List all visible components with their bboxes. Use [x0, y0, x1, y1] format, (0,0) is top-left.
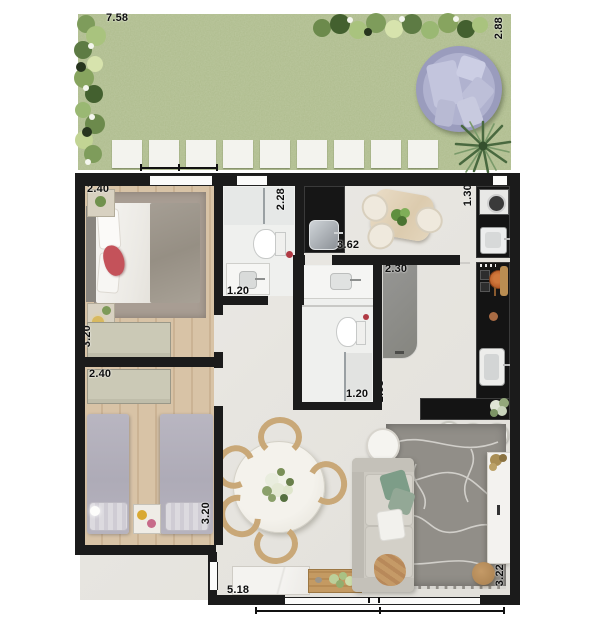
garden-paver	[186, 140, 216, 168]
bed-double-blanket-gray	[150, 203, 200, 303]
wash-basin	[330, 273, 352, 290]
sofa	[352, 458, 414, 592]
potted-plant	[95, 196, 106, 207]
dim-living-depth: 3.22	[495, 564, 506, 586]
window-dining-left	[209, 562, 218, 590]
window-bathroom1	[237, 175, 267, 186]
table-bouquet	[256, 464, 300, 508]
palm-plant	[452, 118, 514, 174]
twin-bed-left	[87, 414, 129, 534]
bed-double-headboard	[86, 206, 96, 302]
dim-bathroom1-depth: 2.28	[276, 188, 287, 210]
closet-panel	[382, 262, 418, 359]
sofa-back	[352, 458, 364, 592]
dim-garden-width: 7.58	[106, 13, 128, 24]
decor-yellow	[137, 510, 147, 520]
burner	[480, 282, 490, 292]
potted-plant	[102, 306, 111, 315]
decor-pink-flower	[147, 519, 156, 528]
wall-bathroom2-right	[373, 255, 382, 410]
faucet	[334, 232, 343, 234]
closet-handle	[395, 351, 404, 354]
garden-flower-border-left	[72, 12, 114, 172]
garden-paver	[297, 140, 327, 168]
sliding-window-bottom	[285, 597, 480, 605]
garden-paver	[260, 140, 290, 168]
shower-glass-line	[263, 188, 265, 224]
towel-red	[286, 251, 293, 258]
window-tick	[368, 597, 370, 603]
dim-closet-width: 2.30	[385, 264, 407, 275]
toilet	[253, 229, 277, 259]
wall-right	[510, 173, 520, 605]
kitchen-sink	[479, 348, 505, 386]
garden-paver	[149, 140, 179, 168]
console-plant	[484, 448, 510, 474]
white-pillow	[376, 508, 406, 541]
wall-bedrooms-right-a	[214, 186, 223, 315]
wall-bedrooms-right-b	[214, 352, 223, 368]
bedroom1-wardrobe	[87, 322, 171, 358]
tan-throw	[374, 554, 406, 586]
garden-paver	[371, 140, 401, 168]
partition-line	[302, 305, 373, 307]
garden-paver	[112, 140, 142, 168]
toilet	[336, 317, 358, 347]
laundry-tub	[480, 227, 507, 254]
wall-bottom-right-piece	[480, 595, 520, 605]
window-kitchen	[493, 175, 507, 186]
wall-bottom-left-piece	[208, 595, 285, 605]
bar-sink	[309, 220, 339, 250]
spice-dots	[480, 264, 496, 267]
garden-paver	[334, 140, 364, 168]
toilet-tank	[275, 232, 286, 256]
cutting-board	[500, 266, 508, 296]
garden-paver	[408, 140, 438, 168]
washer-drum	[487, 194, 506, 213]
washing-machine	[479, 189, 509, 215]
dim-bathroom2-width: 1.20	[346, 389, 368, 400]
dim-bedroom2-depth: 3.20	[201, 502, 212, 524]
wall-bathroom2-bottom	[293, 402, 382, 410]
garden-paver	[223, 140, 253, 168]
floor-plan-canvas: 7.58 2.88 2.40 3.20 2.40 3.20	[0, 0, 600, 622]
window-tick	[378, 597, 380, 603]
dim-tick	[178, 164, 180, 171]
dim-tick	[379, 607, 381, 614]
wall-bedrooms-right-c	[214, 406, 223, 545]
floor-lamp	[90, 506, 100, 516]
wall-top	[75, 173, 520, 186]
faucet	[255, 278, 265, 280]
dim-garden-depth: 2.88	[494, 17, 505, 39]
pan-handle	[494, 287, 496, 296]
dim-bedroom2-width: 2.40	[89, 369, 111, 380]
dim-kitchen-width: 1.30	[463, 184, 474, 206]
wall-bathroom2-left	[293, 265, 302, 410]
dim-tick	[255, 607, 257, 614]
faucet	[350, 279, 361, 281]
tub-basin	[485, 232, 501, 248]
dim-tick	[216, 164, 218, 171]
twin-nightstand	[133, 504, 161, 534]
laundry-counter	[476, 186, 510, 258]
dim-tick	[140, 164, 142, 171]
window-bedroom1	[150, 175, 212, 186]
wall-hall-top-b	[332, 255, 460, 265]
sink-basin	[484, 354, 499, 380]
garden-shrub-border-top	[310, 6, 490, 44]
wall-bedroom2-bottom	[75, 545, 216, 555]
wall-bedrooms-divider	[85, 357, 223, 367]
wall-bathroom1-bottom	[223, 296, 268, 305]
remote-control	[497, 505, 500, 515]
dining-chair	[258, 417, 302, 457]
wall-left	[75, 186, 85, 555]
toilet-tank	[356, 321, 366, 345]
dim-tick	[503, 607, 505, 614]
vanity-sink	[303, 266, 373, 299]
decor-bird	[315, 577, 322, 583]
sofa-armrest	[352, 458, 414, 472]
dim-service-width: 3.62	[337, 240, 359, 251]
table-plant	[388, 205, 414, 229]
towel-red	[363, 314, 369, 320]
copper-bowl	[489, 312, 498, 321]
pouf	[472, 562, 495, 585]
wall-hall-top-a	[293, 255, 305, 265]
